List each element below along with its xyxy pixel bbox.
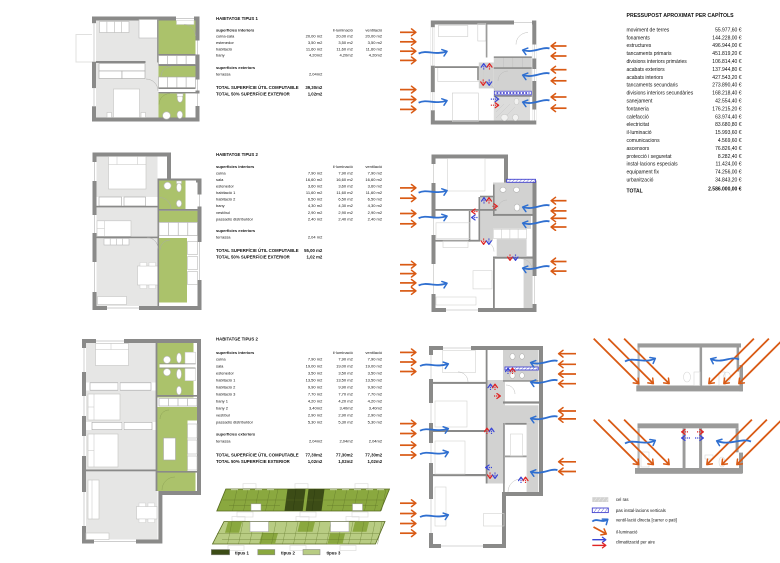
svg-text:terrassa: terrassa [216, 72, 231, 77]
svg-text:il·luminació: il·luminació [333, 350, 354, 355]
svg-text:TOTAL SUPERFÍCIE ÚTIL COMPUTAB: TOTAL SUPERFÍCIE ÚTIL COMPUTABLE [216, 453, 299, 458]
svg-text:2,90 m2: 2,90 m2 [368, 210, 383, 215]
svg-text:ventilació: ventilació [365, 350, 382, 355]
svg-text:4,30 m2: 4,30 m2 [368, 203, 383, 208]
svg-text:2,90 m2: 2,90 m2 [338, 412, 353, 417]
svg-text:20,00 m2: 20,00 m2 [336, 34, 353, 39]
svg-text:7,90 m2: 7,90 m2 [338, 357, 353, 362]
svg-text:tancaments primaris: tancaments primaris [627, 51, 673, 57]
svg-text:9,90 m2: 9,90 m2 [308, 385, 323, 390]
svg-text:11,60 m2: 11,60 m2 [306, 190, 323, 195]
svg-text:4,20m2: 4,20m2 [369, 53, 383, 58]
svg-text:superficies interiors: superficies interiors [216, 164, 255, 169]
svg-text:pas instal·lacions verticals: pas instal·lacions verticals [616, 508, 666, 513]
svg-text:terrassa: terrassa [216, 438, 231, 443]
svg-text:2,90 m2: 2,90 m2 [308, 210, 323, 215]
svg-text:1,02m2: 1,02m2 [308, 92, 323, 97]
svg-text:divisions interiors secundàrie: divisions interiors secundàries [627, 91, 694, 97]
svg-text:6,50 m2: 6,50 m2 [308, 197, 323, 202]
svg-text:estructures: estructures [627, 43, 652, 49]
svg-text:urbanització: urbanització [627, 178, 654, 184]
svg-text:2,04m2: 2,04m2 [309, 438, 323, 443]
svg-text:tipus 3: tipus 3 [327, 550, 341, 555]
svg-text:bany 1: bany 1 [216, 399, 229, 404]
svg-text:20,00 m2: 20,00 m2 [306, 34, 323, 39]
svg-text:3,40m2: 3,40m2 [369, 405, 383, 410]
svg-text:2.586.000,00 €: 2.586.000,00 € [708, 187, 742, 193]
svg-text:7,90 m2: 7,90 m2 [338, 170, 353, 175]
svg-text:11.424,00 €: 11.424,00 € [715, 162, 741, 168]
svg-text:39,30m2: 39,30m2 [305, 85, 323, 90]
svg-text:habitació 2: habitació 2 [216, 197, 236, 202]
svg-text:3,60 m2: 3,60 m2 [368, 184, 383, 189]
svg-text:427.543,20 €: 427.543,20 € [712, 75, 741, 81]
svg-text:11,60 m2: 11,60 m2 [336, 46, 353, 51]
svg-text:77,30m2: 77,30m2 [365, 453, 383, 458]
svg-text:superficies interiors: superficies interiors [216, 350, 255, 355]
svg-text:superficies interiors: superficies interiors [216, 27, 255, 32]
svg-text:2,04m2: 2,04m2 [309, 72, 323, 77]
svg-text:ventil·lació directa [carrer o: ventil·lació directa [carrer o pati] [616, 518, 677, 523]
svg-text:passadís distribuïdor: passadís distribuïdor [216, 419, 254, 424]
svg-text:estenedor: estenedor [216, 40, 234, 45]
svg-text:11,60 m2: 11,60 m2 [366, 190, 383, 195]
svg-text:cuina: cuina [216, 357, 226, 362]
svg-text:ascensors: ascensors [627, 146, 650, 152]
svg-text:7,70 m2: 7,70 m2 [338, 392, 353, 397]
svg-text:6,50 m2: 6,50 m2 [338, 197, 353, 202]
svg-text:2,04m2: 2,04m2 [339, 438, 353, 443]
svg-text:sala: sala [216, 364, 224, 369]
svg-text:instal·lacions especials: instal·lacions especials [627, 162, 679, 168]
svg-text:3,50 m2: 3,50 m2 [338, 40, 353, 45]
svg-text:il·luminació: il·luminació [333, 164, 354, 169]
svg-text:TOTAL SUPERFÍCIE ÚTIL COMPUTAB: TOTAL SUPERFÍCIE ÚTIL COMPUTABLE [216, 248, 299, 253]
svg-text:5,30 m2: 5,30 m2 [308, 419, 323, 424]
svg-text:9,90 m2: 9,90 m2 [368, 385, 383, 390]
svg-text:137.944,80 €: 137.944,80 € [712, 67, 741, 73]
svg-text:2,40 m2: 2,40 m2 [368, 216, 383, 221]
svg-text:bany: bany [216, 203, 225, 208]
svg-text:1,02m2: 1,02m2 [308, 459, 323, 464]
svg-text:il·luminació: il·luminació [333, 27, 354, 32]
svg-text:176.215,20 €: 176.215,20 € [712, 106, 741, 112]
svg-text:TOTAL 50% SUPERFÍCIE EXTERIOR: TOTAL 50% SUPERFÍCIE EXTERIOR [216, 255, 291, 260]
svg-text:496.944,00 €: 496.944,00 € [712, 43, 741, 49]
svg-text:16,60 m2: 16,60 m2 [306, 177, 323, 182]
svg-text:il·luminació: il·luminació [616, 529, 638, 534]
svg-text:acabats interiors: acabats interiors [627, 75, 664, 81]
svg-text:15.993,60 €: 15.993,60 € [715, 130, 742, 136]
svg-text:bany: bany [216, 53, 225, 58]
svg-text:451.819,20 €: 451.819,20 € [712, 51, 741, 57]
svg-text:ventilació: ventilació [365, 27, 382, 32]
svg-text:11,60 m2: 11,60 m2 [306, 46, 323, 51]
svg-text:il·luminació: il·luminació [627, 130, 652, 136]
svg-text:habitació 1: habitació 1 [216, 378, 236, 383]
svg-text:tipus 2: tipus 2 [281, 550, 295, 555]
svg-text:habitació 1: habitació 1 [216, 190, 236, 195]
svg-text:2,04 m2: 2,04 m2 [308, 235, 323, 240]
svg-text:cuina-sala: cuina-sala [216, 34, 235, 39]
svg-text:2,04m2: 2,04m2 [369, 438, 383, 443]
svg-text:3,60 m2: 3,60 m2 [338, 184, 353, 189]
svg-text:19,00 m2: 19,00 m2 [306, 364, 323, 369]
svg-text:sala: sala [216, 177, 224, 182]
svg-text:1,02 m2: 1,02 m2 [307, 255, 323, 260]
svg-text:cel ras: cel ras [616, 497, 629, 502]
svg-text:3,40m2: 3,40m2 [309, 405, 323, 410]
svg-text:6,50 m2: 6,50 m2 [368, 197, 383, 202]
svg-text:4,20m2: 4,20m2 [339, 53, 353, 58]
svg-text:habitació 2: habitació 2 [216, 385, 236, 390]
svg-text:9,90 m2: 9,90 m2 [338, 385, 353, 390]
svg-text:2,90 m2: 2,90 m2 [368, 412, 383, 417]
svg-text:63.974,40 €: 63.974,40 € [715, 114, 742, 120]
svg-text:cuina: cuina [216, 170, 226, 175]
svg-text:fontaneria: fontaneria [627, 106, 649, 112]
svg-text:11,60 m2: 11,60 m2 [336, 190, 353, 195]
svg-text:climatitzacid per aire: climatitzacid per aire [616, 540, 656, 545]
svg-text:11,60 m2: 11,60 m2 [366, 46, 383, 51]
svg-text:1,02m2: 1,02m2 [338, 459, 353, 464]
svg-text:estenedor: estenedor [216, 184, 234, 189]
svg-text:tancaments secundaris: tancaments secundaris [627, 83, 679, 89]
svg-text:passadís distribuïdor: passadís distribuïdor [216, 216, 254, 221]
svg-text:19,00 m2: 19,00 m2 [336, 364, 353, 369]
svg-text:4,20m2: 4,20m2 [309, 53, 323, 58]
svg-text:3,50 m2: 3,50 m2 [368, 40, 383, 45]
svg-text:TOTAL 50% SUPERFÍCIE EXTERIOR: TOTAL 50% SUPERFÍCIE EXTERIOR [216, 459, 291, 464]
svg-text:77,30m2: 77,30m2 [336, 453, 354, 458]
svg-text:3,50 m2: 3,50 m2 [308, 371, 323, 376]
svg-text:7,90 m2: 7,90 m2 [368, 170, 383, 175]
svg-text:5,30 m2: 5,30 m2 [338, 419, 353, 424]
svg-text:4,30 m2: 4,30 m2 [338, 203, 353, 208]
svg-text:4,20 m2: 4,20 m2 [308, 399, 323, 404]
svg-text:13,50 m2: 13,50 m2 [365, 378, 382, 383]
svg-text:7,90 m2: 7,90 m2 [308, 170, 323, 175]
svg-text:terrassa: terrassa [216, 235, 231, 240]
svg-text:sanejament: sanejament [627, 99, 653, 105]
svg-text:168.218,40 €: 168.218,40 € [712, 91, 741, 97]
svg-text:3,50 m2: 3,50 m2 [338, 371, 353, 376]
svg-text:superficies exteriors: superficies exteriors [216, 228, 256, 233]
svg-text:5,30 m2: 5,30 m2 [368, 419, 383, 424]
svg-text:3,50 m2: 3,50 m2 [308, 40, 323, 45]
svg-text:electricitat: electricitat [627, 122, 650, 128]
svg-text:19,00 m2: 19,00 m2 [365, 364, 382, 369]
svg-text:55,00 m2: 55,00 m2 [304, 248, 323, 253]
svg-text:7,70 m2: 7,70 m2 [368, 392, 383, 397]
svg-text:protecció i seguretat: protecció i seguretat [627, 154, 673, 160]
svg-text:3,50 m2: 3,50 m2 [368, 371, 383, 376]
svg-text:acabats exteriors: acabats exteriors [627, 67, 666, 73]
svg-text:TOTAL: TOTAL [627, 189, 643, 195]
svg-text:tipus 1: tipus 1 [235, 550, 249, 555]
svg-text:20,00 m2: 20,00 m2 [365, 34, 382, 39]
svg-text:42.554,40 €: 42.554,40 € [715, 99, 742, 105]
svg-text:106.814,40 €: 106.814,40 € [712, 59, 741, 65]
svg-text:83.680,80 €: 83.680,80 € [715, 122, 742, 128]
svg-text:2,40 m2: 2,40 m2 [338, 216, 353, 221]
svg-text:2,90 m2: 2,90 m2 [308, 412, 323, 417]
svg-text:16,60 m2: 16,60 m2 [365, 177, 382, 182]
svg-text:144.228,00 €: 144.228,00 € [712, 35, 741, 41]
svg-text:77,30m2: 77,30m2 [305, 453, 323, 458]
svg-text:divisions interiors primàries: divisions interiors primàries [627, 59, 688, 65]
svg-text:4,20 m2: 4,20 m2 [368, 399, 383, 404]
svg-text:TOTAL 50% SUPERFÍCIE EXTERIOR: TOTAL 50% SUPERFÍCIE EXTERIOR [216, 92, 291, 97]
svg-text:calefacció: calefacció [627, 114, 649, 120]
svg-text:PRESSUPOST APROXIMAT PER CAPÍT: PRESSUPOST APROXIMAT PER CAPÍTOLS [627, 11, 735, 19]
svg-text:1,02m2: 1,02m2 [368, 459, 383, 464]
svg-text:HABITATGE TIPUS 1: HABITATGE TIPUS 1 [216, 16, 258, 21]
svg-text:superficies exteriors: superficies exteriors [216, 431, 256, 436]
svg-text:vestíbul: vestíbul [216, 210, 230, 215]
svg-text:fonaments: fonaments [627, 35, 651, 41]
svg-text:3,40m2: 3,40m2 [339, 405, 353, 410]
svg-text:8.282,40 €: 8.282,40 € [718, 154, 742, 160]
svg-text:7,70 m2: 7,70 m2 [308, 392, 323, 397]
svg-text:estenedor: estenedor [216, 371, 234, 376]
svg-text:273.890,40 €: 273.890,40 € [712, 83, 741, 89]
svg-text:13,50 m2: 13,50 m2 [306, 378, 323, 383]
svg-text:55.977,60 €: 55.977,60 € [715, 27, 742, 33]
svg-text:moviment de terres: moviment de terres [627, 27, 670, 33]
svg-text:ventilació: ventilació [365, 164, 382, 169]
svg-text:vestíbul: vestíbul [216, 412, 230, 417]
svg-text:equipament fix: equipament fix [627, 170, 660, 176]
svg-text:16,60 m2: 16,60 m2 [336, 177, 353, 182]
svg-text:4,30 m2: 4,30 m2 [308, 203, 323, 208]
svg-text:7,90 m2: 7,90 m2 [308, 357, 323, 362]
svg-text:HABITATGE TIPUS 2: HABITATGE TIPUS 2 [216, 152, 258, 157]
svg-text:HABITATGE TIPUS 2: HABITATGE TIPUS 2 [216, 337, 258, 342]
svg-text:bany 2: bany 2 [216, 405, 229, 410]
svg-text:superficies exteriors: superficies exteriors [216, 65, 256, 70]
svg-text:34.843,20 €: 34.843,20 € [715, 178, 742, 184]
svg-text:4,20 m2: 4,20 m2 [338, 399, 353, 404]
svg-text:3,60 m2: 3,60 m2 [308, 184, 323, 189]
svg-text:13,50 m2: 13,50 m2 [336, 378, 353, 383]
svg-text:7,90 m2: 7,90 m2 [368, 357, 383, 362]
svg-text:2,40 m2: 2,40 m2 [308, 216, 323, 221]
svg-text:76.826,40 €: 76.826,40 € [715, 146, 742, 152]
svg-text:TOTAL SUPERFÍCIE ÚTIL COMPUTAB: TOTAL SUPERFÍCIE ÚTIL COMPUTABLE [216, 85, 299, 90]
svg-text:comunicacions: comunicacions [627, 138, 661, 144]
svg-text:habitació: habitació [216, 46, 233, 51]
svg-text:habitació 3: habitació 3 [216, 392, 236, 397]
svg-text:4.569,60 €: 4.569,60 € [718, 138, 742, 144]
svg-text:2,90 m2: 2,90 m2 [338, 210, 353, 215]
svg-text:74.256,00 €: 74.256,00 € [715, 170, 742, 176]
